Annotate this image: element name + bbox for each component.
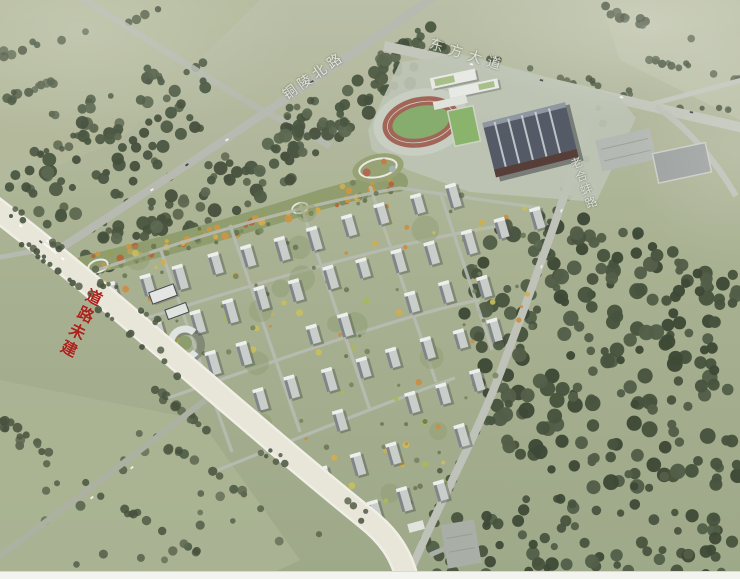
- image-bottom-border: [0, 571, 740, 579]
- masterplan-rendering: 铜陵北路 东方大道 老合蚌路 道路未建: [0, 0, 740, 579]
- aerial-rendering-canvas: [0, 0, 740, 579]
- overall-haze: [0, 0, 740, 579]
